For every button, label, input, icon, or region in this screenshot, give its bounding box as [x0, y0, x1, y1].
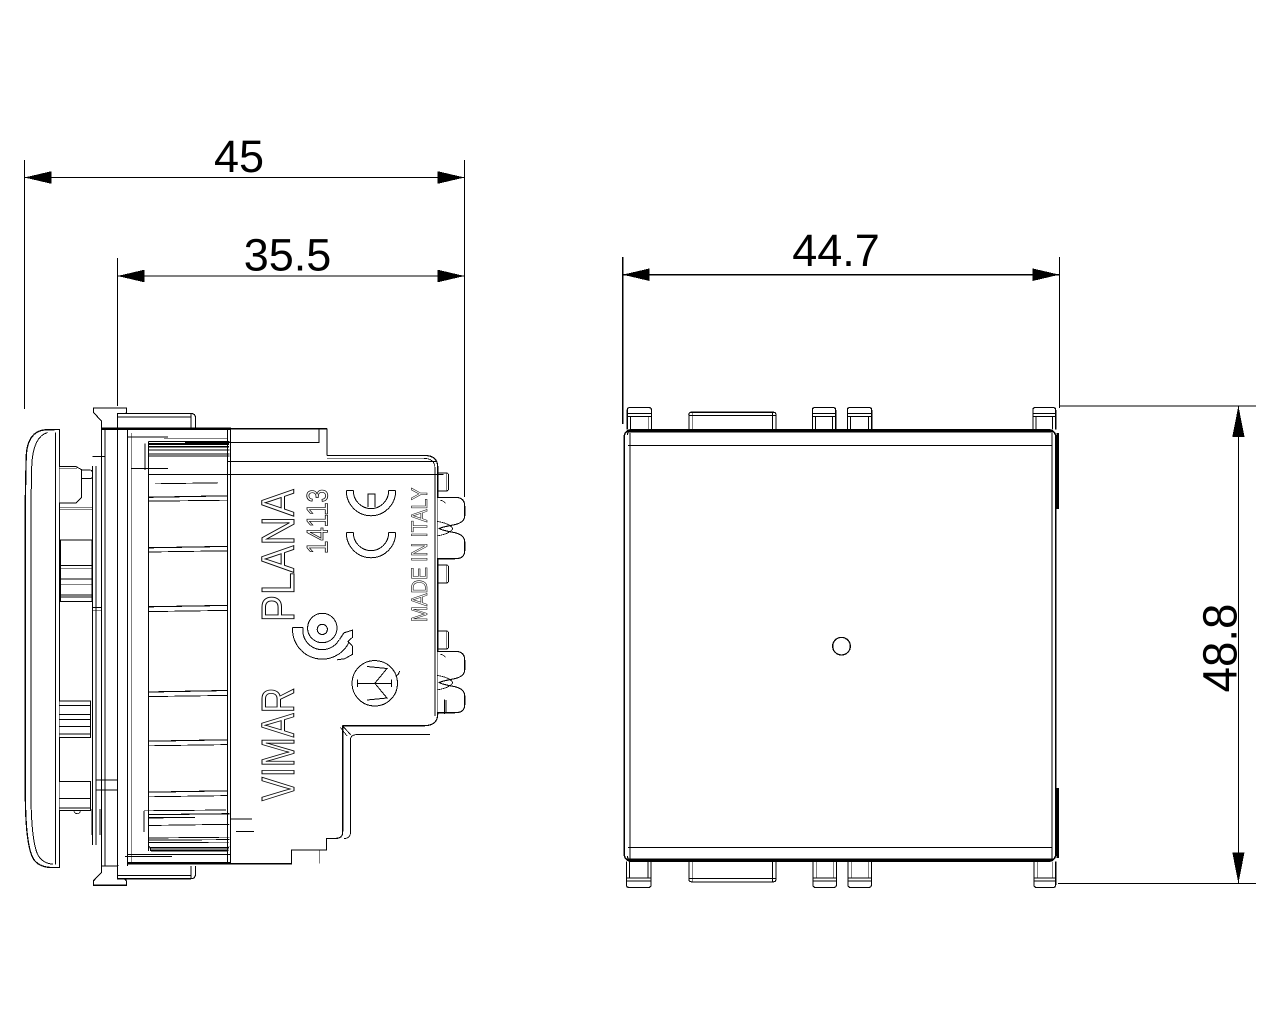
- svg-text:45: 45: [214, 131, 264, 182]
- svg-text:44.7: 44.7: [792, 225, 880, 276]
- svg-text:14113: 14113: [300, 489, 334, 554]
- svg-text:PLANA: PLANA: [254, 489, 305, 622]
- svg-text:35.5: 35.5: [244, 230, 332, 281]
- svg-text:MADE IN ITALY: MADE IN ITALY: [408, 487, 433, 622]
- svg-text:48.8: 48.8: [1193, 604, 1246, 693]
- svg-text:VIMAR: VIMAR: [253, 687, 304, 801]
